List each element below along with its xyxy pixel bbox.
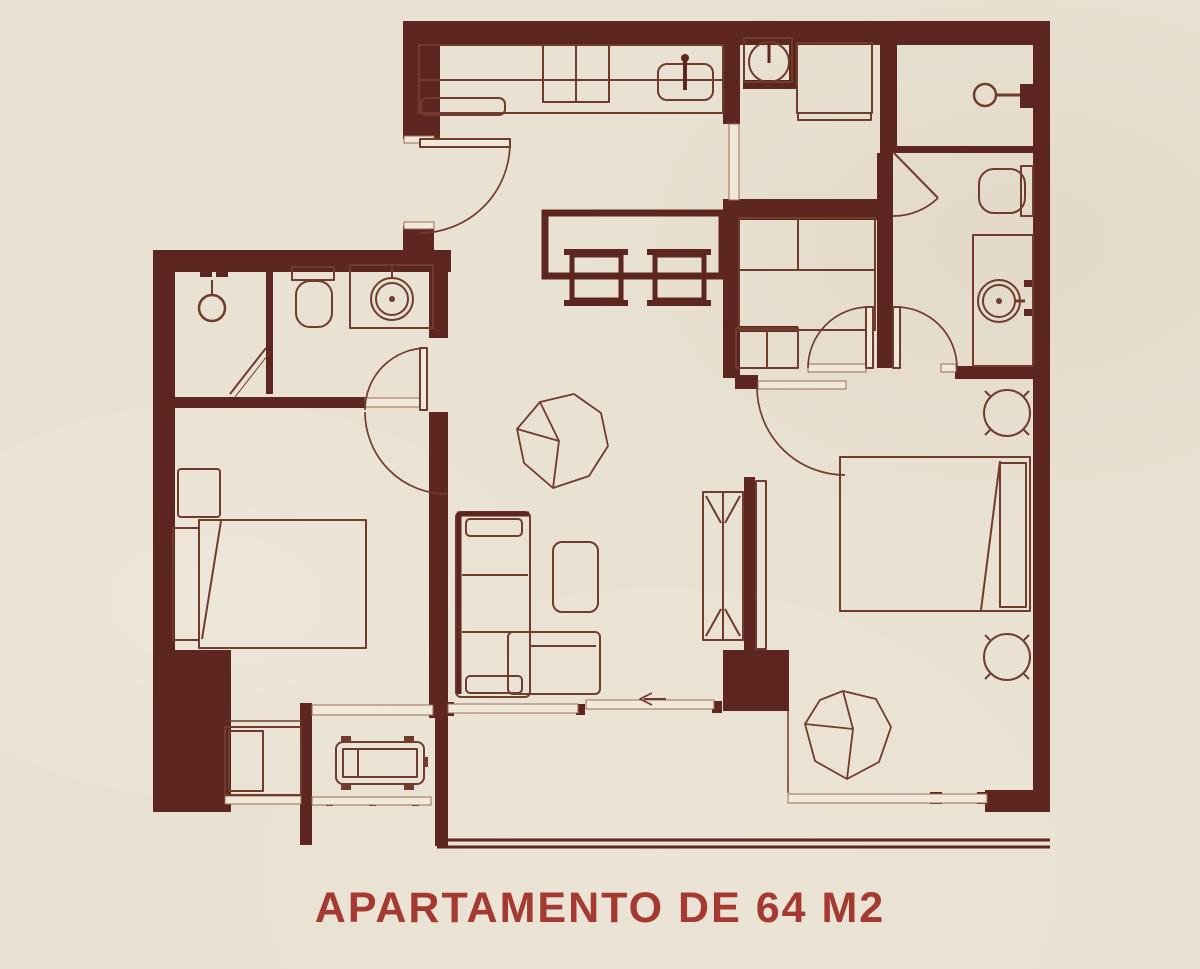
hall-threshold-left bbox=[808, 364, 866, 372]
entry-door-arc bbox=[420, 143, 510, 233]
laundry-door-jamb bbox=[729, 124, 739, 200]
nightstand bbox=[178, 469, 220, 517]
bed1-headboard bbox=[173, 528, 199, 640]
laundry-bottom-wall bbox=[723, 199, 879, 220]
sink2-bracket-a bbox=[1024, 280, 1033, 287]
wardrobe-diag-b bbox=[725, 496, 740, 523]
bed1 bbox=[199, 520, 366, 648]
bench-foot-b bbox=[404, 784, 414, 790]
bench-room-window-bottom bbox=[312, 797, 431, 805]
bed2-corner-block bbox=[723, 650, 789, 711]
sink2-dot bbox=[996, 298, 1002, 304]
bath1-bottom-wall bbox=[153, 397, 365, 408]
plan-title: APARTAMENTO DE 64 M2 bbox=[0, 884, 1200, 933]
decor-rock-bed2-facet-a bbox=[843, 691, 853, 779]
bed1-fold-line bbox=[202, 521, 221, 639]
left-wall bbox=[153, 250, 175, 652]
decor-rock-bed2-facet-b bbox=[805, 724, 853, 729]
shower1-bracket-b bbox=[216, 263, 228, 277]
sink2-bracket-b bbox=[1024, 309, 1033, 316]
toilet2-tank bbox=[1021, 166, 1033, 216]
shower2-divider-wall bbox=[893, 146, 1035, 153]
bath1-door-threshold bbox=[365, 398, 427, 407]
sofa-cushion-a bbox=[466, 519, 522, 536]
floor-plan bbox=[0, 0, 1200, 880]
coffee-table bbox=[553, 542, 598, 612]
water-heater-tray bbox=[798, 113, 871, 120]
hall-door-arc-right bbox=[896, 307, 957, 368]
hall-door-arc-left bbox=[808, 307, 869, 368]
bench-foot-c bbox=[341, 736, 351, 742]
bath1-divider-wall bbox=[266, 268, 273, 394]
hall-left-wall bbox=[723, 203, 740, 378]
bench-foot-d bbox=[404, 736, 414, 742]
right-wall bbox=[1033, 21, 1050, 812]
toilet1-bowl bbox=[296, 281, 332, 327]
bed2-window bbox=[788, 794, 987, 803]
wardrobe-side-panel bbox=[756, 481, 766, 649]
stool2a-foot-c bbox=[985, 430, 990, 435]
corner-block-bottom-right bbox=[985, 790, 1035, 812]
wardrobe-wall bbox=[744, 477, 755, 651]
bench-room-window-top bbox=[312, 705, 433, 715]
shower2-door-leaf bbox=[893, 152, 938, 198]
bed2-door-stub bbox=[735, 375, 758, 389]
stool2a-foot-a bbox=[985, 391, 990, 396]
shower2-door-arc bbox=[893, 198, 938, 216]
decor-rock-living bbox=[517, 394, 608, 488]
hall-threshold-right bbox=[941, 364, 956, 372]
toilet2-bowl bbox=[979, 169, 1025, 213]
entry-jamb-b bbox=[404, 222, 434, 229]
stool2b-foot-b bbox=[1024, 635, 1029, 640]
shower1-bracket-a bbox=[200, 263, 212, 277]
hall-closet bbox=[739, 218, 875, 330]
kitchen-faucet-dot bbox=[681, 54, 689, 62]
balcony-left-wall bbox=[435, 718, 448, 846]
wardrobe-diag-d bbox=[725, 609, 740, 636]
bed2-door-arc bbox=[757, 387, 845, 475]
bed2 bbox=[840, 457, 1030, 611]
closet1-inner bbox=[229, 731, 263, 791]
hall-door-leaf-left bbox=[866, 307, 873, 368]
laundry-left-wall bbox=[723, 31, 740, 124]
entry-door-leaf bbox=[420, 139, 510, 147]
hall-door-leaf-right bbox=[893, 307, 900, 368]
decor-rock-living-facet-a bbox=[540, 402, 559, 488]
bed2-door-threshold bbox=[758, 381, 846, 389]
sink1-dot bbox=[389, 296, 395, 302]
entry-stub-lower bbox=[403, 226, 434, 252]
stool2b-foot-c bbox=[985, 674, 990, 679]
balcony-bench-inner bbox=[343, 749, 417, 777]
water-heater bbox=[797, 43, 872, 113]
hall-wall bbox=[877, 153, 893, 368]
sofa-cushion-b bbox=[466, 676, 522, 693]
stool2b-foot-d bbox=[1024, 674, 1029, 679]
bed2-stool-b bbox=[984, 634, 1030, 680]
bench-foot-a bbox=[341, 784, 351, 790]
wardrobe-diag-c bbox=[706, 609, 721, 636]
shower1-door-leaf-a bbox=[230, 348, 266, 394]
bath1-top-wall bbox=[153, 250, 451, 272]
shower2-bracket bbox=[1020, 84, 1033, 108]
shower1-head bbox=[199, 295, 225, 321]
left-bottom-block bbox=[153, 650, 231, 812]
central-wall bbox=[429, 412, 448, 718]
bath2-bottom-wall bbox=[955, 366, 1035, 379]
stool2a-foot-d bbox=[1024, 430, 1029, 435]
bed2-headboard bbox=[1000, 463, 1026, 607]
shower1-door-leaf-b bbox=[235, 351, 271, 397]
decor-rock-living-facet-b bbox=[517, 429, 559, 441]
bed2-fold-line bbox=[981, 461, 1000, 610]
closet-niche-window bbox=[225, 796, 301, 804]
sofa-body bbox=[456, 512, 530, 697]
stool2a-foot-b bbox=[1024, 391, 1029, 396]
stool2b-foot-a bbox=[985, 635, 990, 640]
bath1-door-leaf bbox=[420, 348, 427, 410]
shower2-head bbox=[974, 84, 996, 106]
wardrobe-diag-a bbox=[706, 496, 721, 523]
laundry-right-wall bbox=[880, 31, 897, 153]
bed2-stool-a bbox=[984, 390, 1030, 436]
sliding-door-panel-a bbox=[448, 704, 578, 713]
bench-knob bbox=[423, 757, 428, 767]
